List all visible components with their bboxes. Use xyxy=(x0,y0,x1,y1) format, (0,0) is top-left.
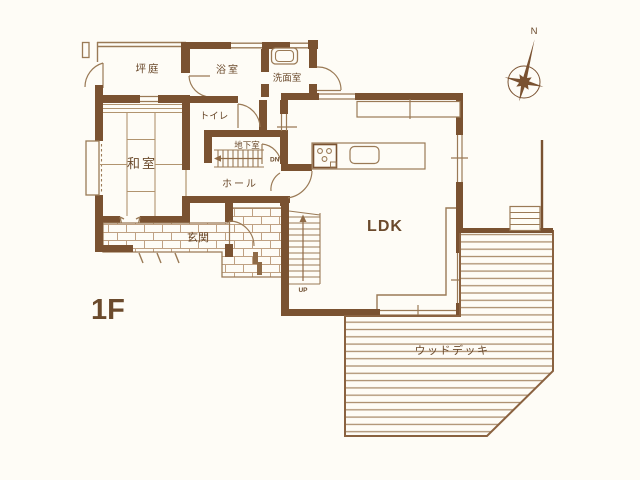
up-stairs xyxy=(281,203,320,316)
dn-label: DN xyxy=(270,157,280,164)
floor-plan-svg: 坪庭 浴室 洗面室 トイレ 地下室 ホール 和室 玄関 LDK ウッドデッキ U… xyxy=(0,0,640,480)
kitchen-back-counter xyxy=(357,102,460,118)
up-arrow xyxy=(300,215,307,223)
courtyard-label: 坪庭 xyxy=(136,62,161,75)
washitsu-label: 和室 xyxy=(127,156,157,171)
ldk-door-leaf xyxy=(281,164,312,171)
entrance-label: 玄関 xyxy=(187,230,209,244)
toilet-label: トイレ xyxy=(200,111,229,122)
up-label: UP xyxy=(298,287,308,294)
compass-rose-icon xyxy=(505,39,544,101)
floor-plan-canvas: 坪庭 浴室 洗面室 トイレ 地下室 ホール 和室 玄関 LDK ウッドデッキ U… xyxy=(0,0,640,480)
bath-door-arc xyxy=(189,76,210,97)
floor-label: 1F xyxy=(91,294,125,326)
washroom-label: 洗面室 xyxy=(273,72,302,84)
courtyard-gate-arc xyxy=(85,63,103,88)
bay-window xyxy=(86,141,99,195)
hall-label: ホール xyxy=(222,178,258,190)
north-label: N xyxy=(531,26,538,37)
approach-steps xyxy=(139,253,179,263)
room-washroom xyxy=(272,40,342,100)
wood-deck xyxy=(345,140,553,436)
ldk-label: LDK xyxy=(367,218,403,235)
hall-door-arc xyxy=(271,173,280,191)
engawa-band xyxy=(100,105,182,113)
basement-label: 地下室 xyxy=(234,140,260,150)
deck-area xyxy=(345,231,553,436)
washroom-door-arc xyxy=(317,67,341,91)
ldk-door-arc xyxy=(287,171,312,198)
toilet-door-arc xyxy=(238,104,260,128)
bath-label: 浴室 xyxy=(216,63,240,76)
wood-deck-label: ウッドデッキ xyxy=(415,343,490,357)
